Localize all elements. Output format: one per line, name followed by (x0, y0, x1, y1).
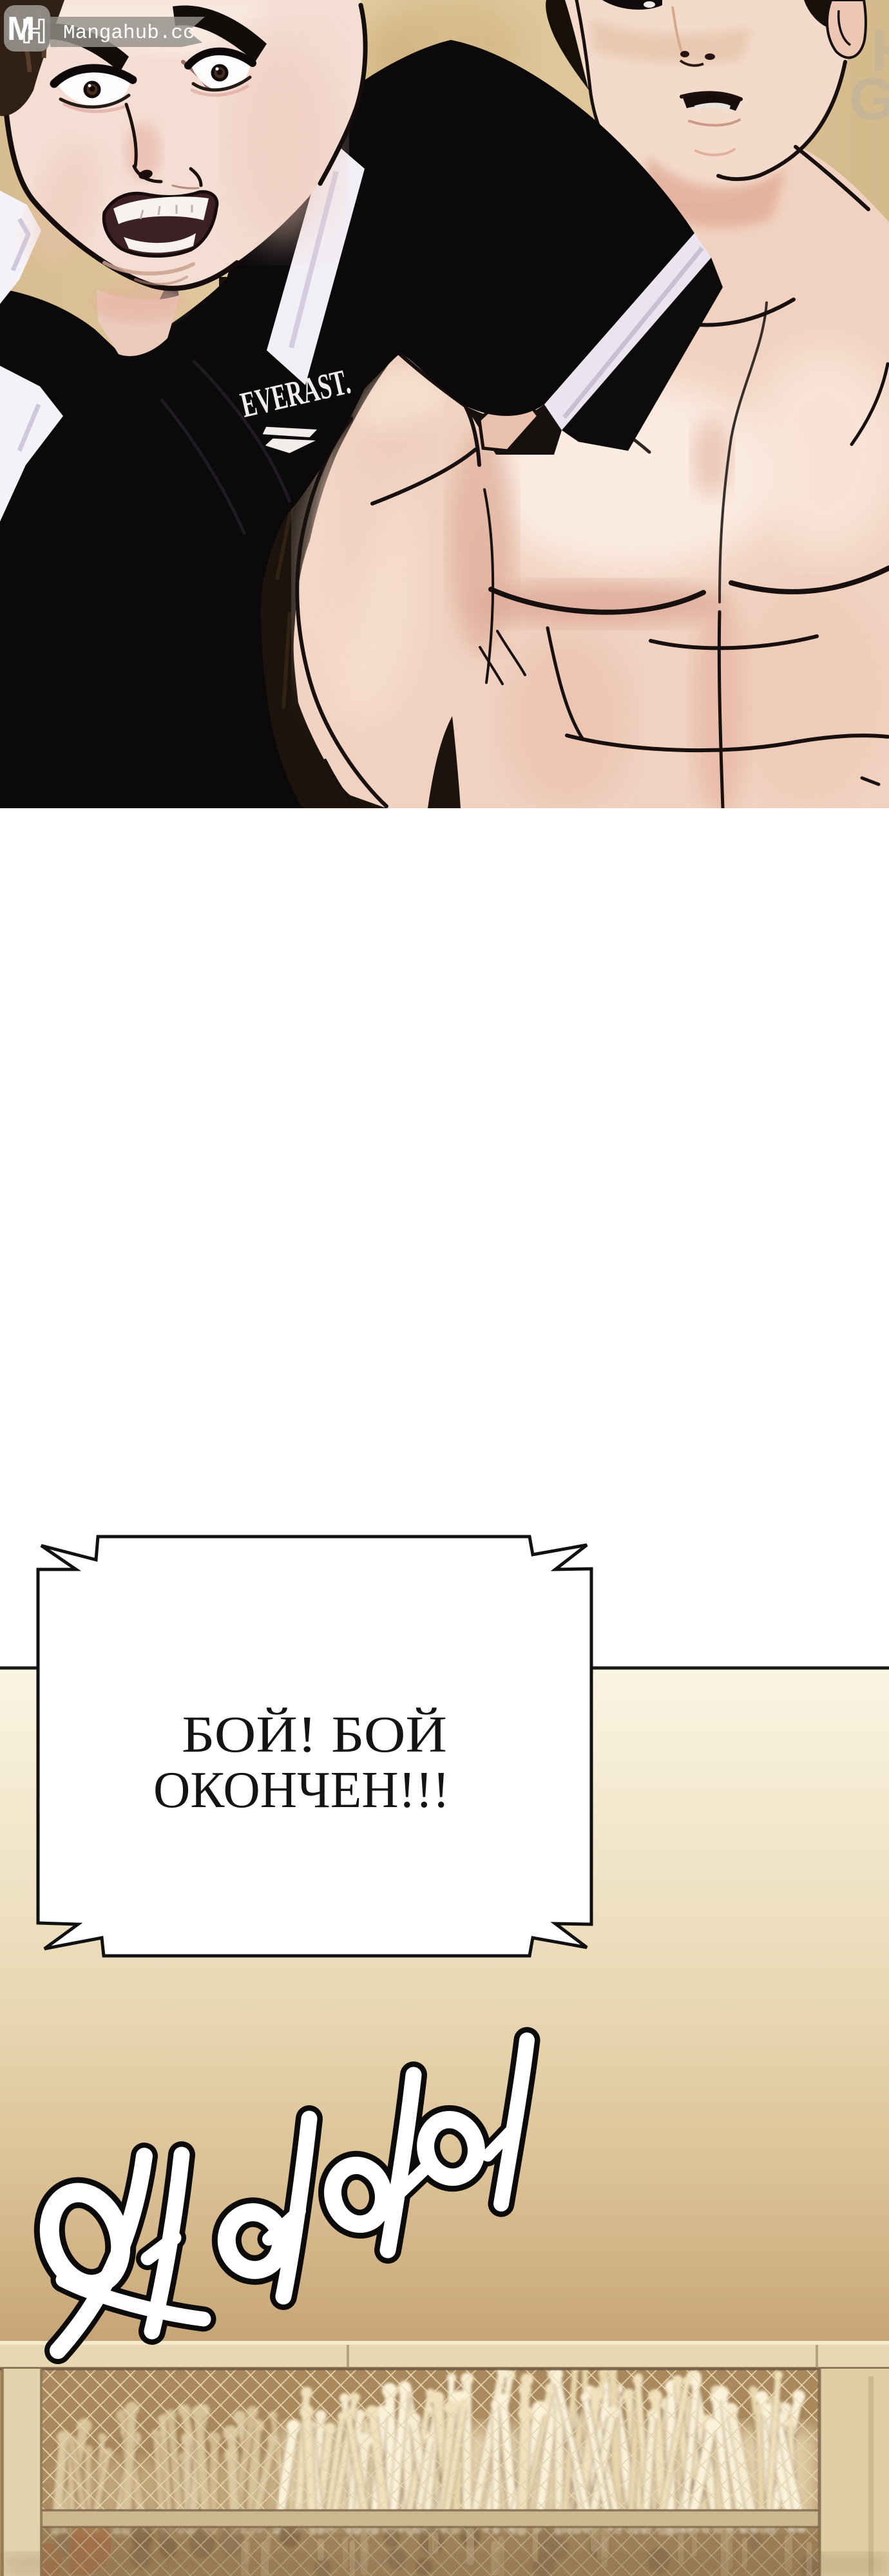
svg-text:H: H (871, 18, 889, 84)
svg-text:H: H (22, 13, 46, 50)
svg-text:БОЙ! БОЙ: БОЙ! БОЙ (182, 1707, 447, 1763)
svg-text:ОКОНЧЕН!!!: ОКОНЧЕН!!! (153, 1762, 450, 1819)
svg-text:Mangahub.cc: Mangahub.cc (63, 22, 195, 44)
